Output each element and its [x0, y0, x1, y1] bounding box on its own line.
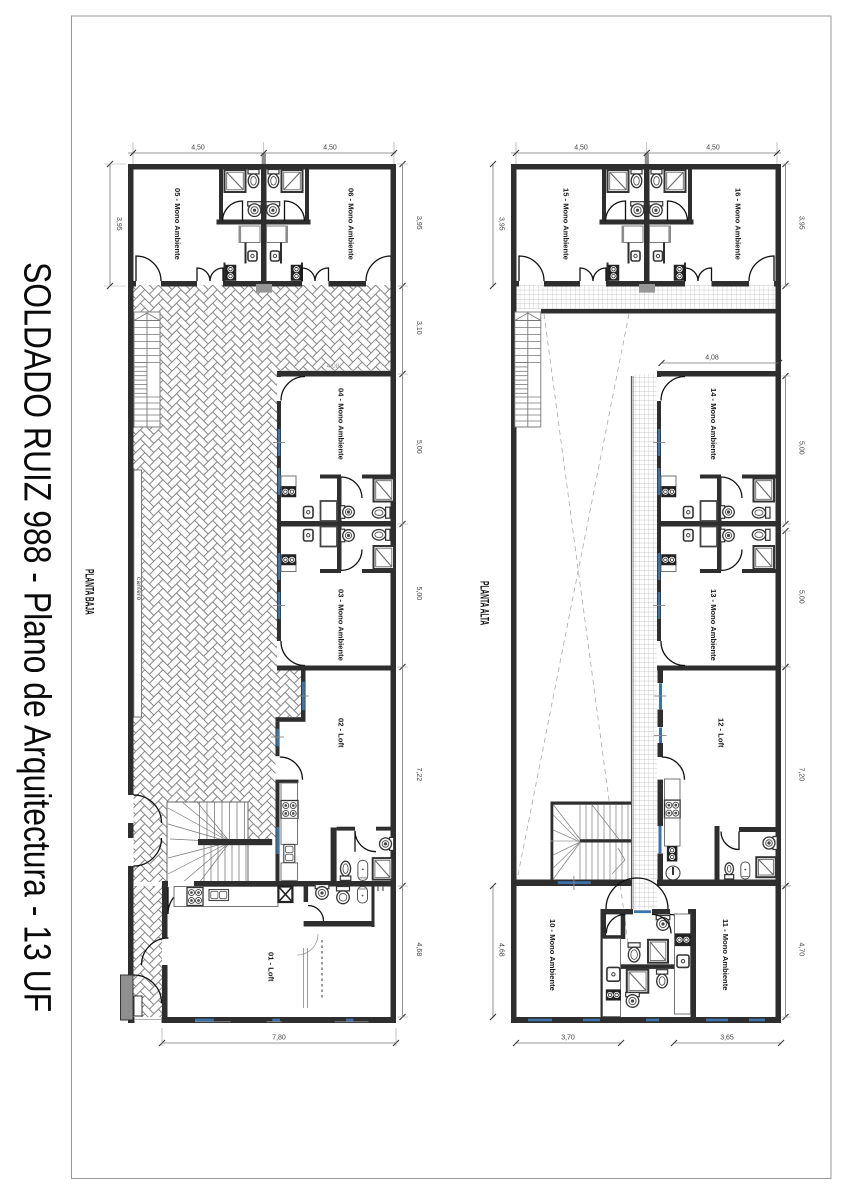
- svg-text:SOLDADO RUIZ 988 - Plano de Ar: SOLDADO RUIZ 988 - Plano de Arquitectura…: [16, 262, 58, 1012]
- svg-text:05 - Mono Ambiente: 05 - Mono Ambiente: [173, 188, 182, 260]
- svg-text:4,50: 4,50: [191, 145, 205, 152]
- svg-text:5,00: 5,00: [415, 587, 422, 601]
- svg-text:04 - Mono Ambiente: 04 - Mono Ambiente: [337, 388, 346, 460]
- svg-text:PLANTA BAJA: PLANTA BAJA: [82, 569, 96, 615]
- svg-text:4,68: 4,68: [498, 943, 505, 957]
- svg-text:5,00: 5,00: [415, 440, 422, 454]
- svg-text:3,70: 3,70: [561, 1035, 575, 1042]
- svg-text:5,00: 5,00: [798, 441, 805, 455]
- svg-text:4,08: 4,08: [705, 355, 719, 362]
- svg-text:4,50: 4,50: [574, 145, 588, 152]
- svg-text:14 - Mono Ambiente: 14 - Mono Ambiente: [709, 388, 718, 460]
- svg-text:16 - Mono Ambiente: 16 - Mono Ambiente: [734, 188, 743, 260]
- svg-text:11 - Mono Ambiente: 11 - Mono Ambiente: [721, 919, 730, 990]
- svg-text:06 - Mono Ambiente: 06 - Mono Ambiente: [347, 188, 356, 260]
- svg-text:PLANTA ALTA: PLANTA ALTA: [477, 581, 491, 625]
- svg-text:4,08: 4,08: [327, 363, 340, 370]
- svg-text:3,10: 3,10: [415, 321, 422, 335]
- svg-text:4,68: 4,68: [415, 943, 422, 957]
- svg-text:3,95: 3,95: [115, 217, 122, 231]
- svg-text:01 - Loft: 01 - Loft: [267, 952, 276, 982]
- svg-text:12 - Loft: 12 - Loft: [717, 718, 726, 748]
- svg-text:13 - Mono Ambiente: 13 - Mono Ambiente: [709, 589, 718, 661]
- svg-text:4,70: 4,70: [798, 943, 805, 957]
- svg-text:3,95: 3,95: [498, 217, 505, 231]
- svg-text:7,20: 7,20: [798, 768, 805, 782]
- svg-text:3,95: 3,95: [798, 216, 805, 230]
- svg-text:3,95: 3,95: [415, 216, 422, 230]
- svg-text:cantero: cantero: [135, 577, 142, 601]
- svg-text:15 - Mono Ambiente: 15 - Mono Ambiente: [562, 188, 571, 260]
- svg-text:02 - Loft: 02 - Loft: [337, 718, 346, 748]
- svg-text:03 - Mono Ambiente: 03 - Mono Ambiente: [337, 589, 346, 661]
- svg-text:7,80: 7,80: [272, 1035, 286, 1042]
- svg-text:4,50: 4,50: [706, 145, 720, 152]
- svg-text:7,22: 7,22: [415, 768, 422, 782]
- svg-text:4,50: 4,50: [323, 145, 337, 152]
- svg-text:10 - Mono Ambiente: 10 - Mono Ambiente: [548, 919, 557, 991]
- svg-text:5,00: 5,00: [798, 590, 805, 604]
- svg-text:3,65: 3,65: [720, 1035, 734, 1042]
